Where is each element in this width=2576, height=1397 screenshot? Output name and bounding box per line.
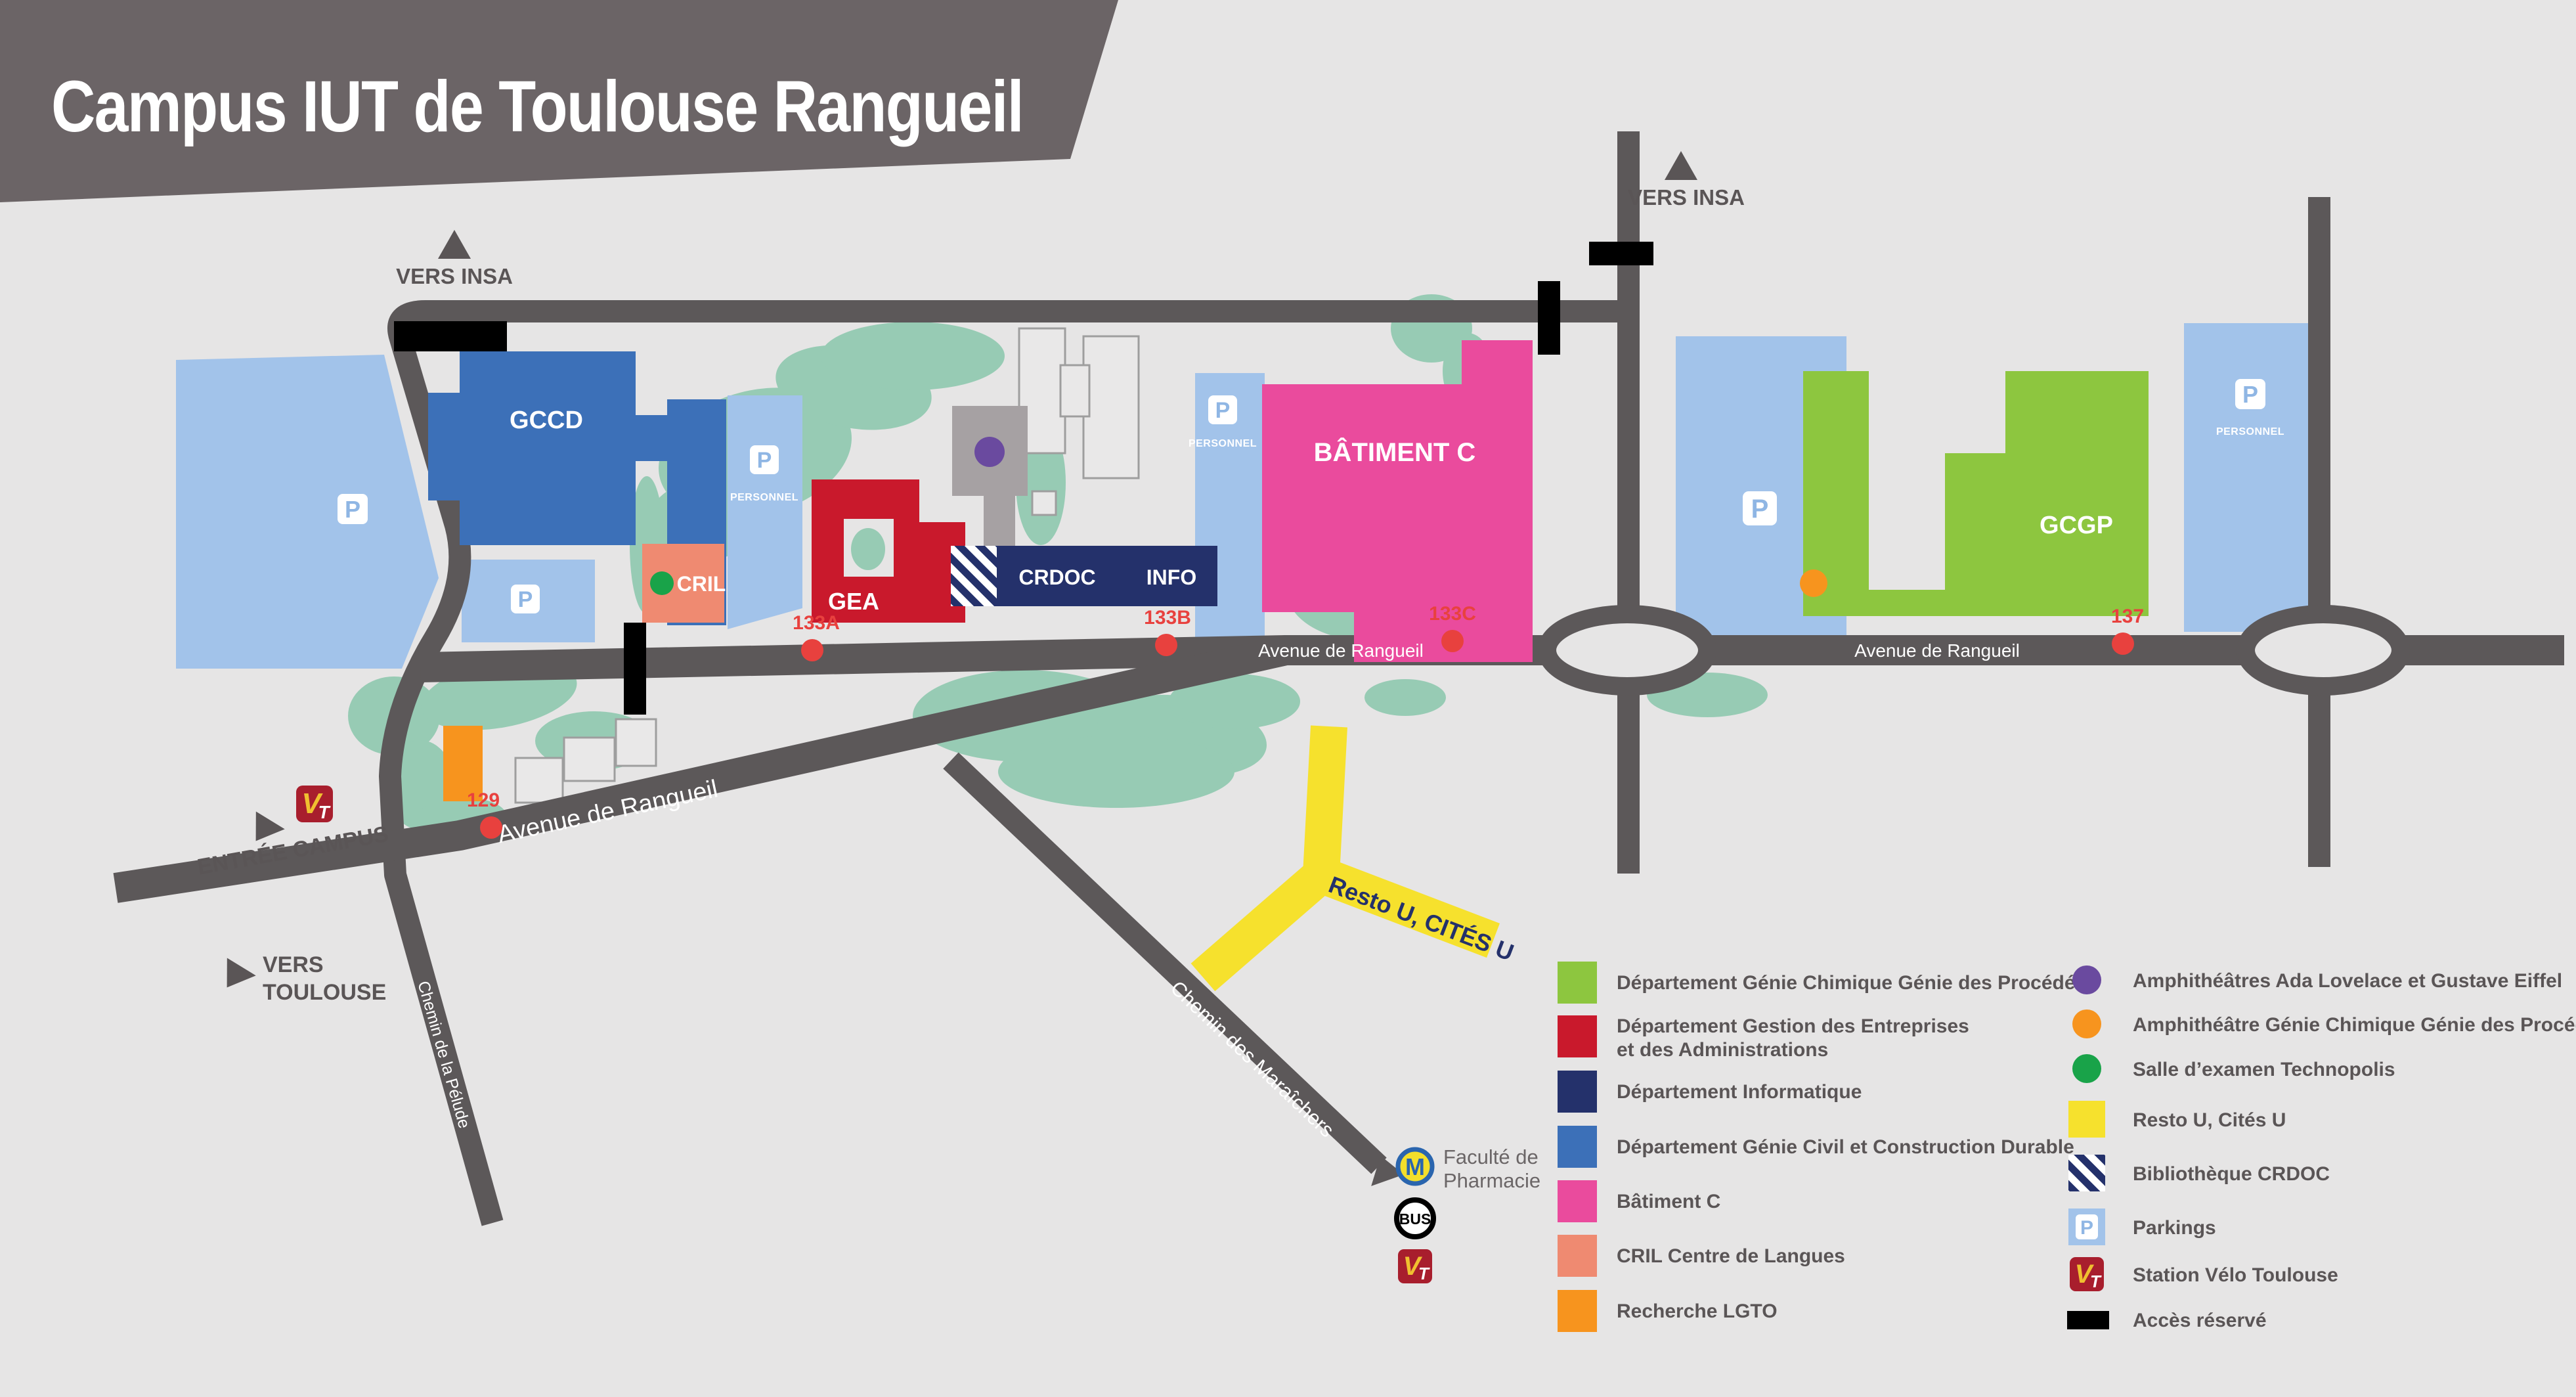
legend-label: Accès réservé: [2133, 1310, 2267, 1331]
legend-swatch-gcgp: [1558, 962, 1597, 1004]
green-area-blob: [1364, 679, 1446, 716]
campus-map-svg: Resto U, CITÉS U GCCD CRIL GEA CRDOC INF…: [0, 0, 2576, 1397]
legend-icon-bibliotheque: [2068, 1155, 2105, 1191]
stop-dot: [2112, 632, 2134, 655]
green-area-blob: [821, 322, 1005, 390]
parking-letter: P: [2242, 381, 2258, 408]
personnel-label: PERSONNEL: [730, 492, 798, 503]
velo-t-letter: T: [1418, 1264, 1430, 1283]
acces-reserve-bar: [624, 623, 646, 715]
stop-dot: [801, 639, 823, 661]
legend-label: Salle d’examen Technopolis: [2133, 1059, 2395, 1080]
legend-label: Amphithéâtre Génie Chimique Génie des Pr…: [2133, 1014, 2576, 1036]
parking-letter: P: [1751, 495, 1769, 523]
stop-dot: [480, 816, 502, 839]
gccd-label: GCCD: [510, 407, 583, 434]
stop-label: 133A: [793, 612, 840, 634]
velo-t-letter: T: [318, 802, 331, 822]
legend-label: Bibliothèque CRDOC: [2133, 1163, 2330, 1185]
batiment-c-label: BÂTIMENT C: [1314, 437, 1476, 467]
roundabout-east: [2246, 614, 2401, 686]
gcgp-label: GCGP: [2040, 512, 2113, 539]
legend-swatch-lgto: [1558, 1290, 1597, 1332]
legend-label: CRIL Centre de Langues: [1617, 1245, 1845, 1267]
outlined-building: [564, 738, 615, 781]
stop-label: 133B: [1144, 607, 1191, 629]
stop-dot: [1155, 634, 1177, 656]
amphi-building-stem: [984, 496, 1015, 547]
parking-icon: P: [338, 494, 368, 524]
legend-label: Parkings: [2133, 1217, 2216, 1239]
legend-icon-acces-reserve: [2067, 1311, 2109, 1329]
legend-icon-resto-u: [2068, 1101, 2105, 1138]
vers-toulouse-label-line1: VERS: [263, 952, 324, 977]
parking-letter: P: [757, 448, 772, 473]
stop-label: 129: [467, 789, 500, 811]
legend-swatch-gea: [1558, 1015, 1597, 1057]
page-title: Campus IUT de Toulouse Rangueil: [51, 66, 1023, 147]
legend-label: Département Génie Civil et Construction …: [1617, 1136, 2074, 1158]
stop-label: 137: [2111, 606, 2144, 627]
amphi-gcgp-dot: [1800, 569, 1827, 597]
legend-icon-technopolis: [2072, 1054, 2101, 1083]
legend-swatch-batimentc: [1558, 1180, 1597, 1222]
stop-dot: [1441, 630, 1464, 652]
campus-map-page: Resto U, CITÉS U GCCD CRIL GEA CRDOC INF…: [0, 0, 2576, 1397]
gea-courtyard-green: [851, 528, 885, 570]
vers-insa-west-label: VERS INSA: [396, 264, 513, 288]
velo-toulouse-icon: V T: [1398, 1249, 1432, 1283]
crdoc-striped-block: [951, 546, 997, 606]
legend-swatch-cril: [1558, 1235, 1597, 1277]
outlined-building: [1032, 491, 1056, 515]
velo-t-letter: T: [2090, 1272, 2102, 1291]
bus-icon: BUS: [1397, 1200, 1433, 1237]
legend-label: Recherche LGTO: [1617, 1300, 1778, 1322]
parking-personnel-gccd: [728, 395, 802, 629]
parking-letter: P: [2080, 1217, 2093, 1239]
roundabout-west: [1547, 614, 1707, 686]
green-area-blob: [998, 736, 1234, 808]
faculte-label-line2: Pharmacie: [1443, 1169, 1540, 1192]
gcgp-connector: [1869, 590, 1945, 616]
legend-icon-parkings: P: [2068, 1209, 2105, 1245]
faculte-label-line1: Faculté de: [1443, 1145, 1539, 1168]
legend-swatch-gccd: [1558, 1126, 1597, 1168]
avenue-rangueil-label-east: Avenue de Rangueil: [1854, 640, 2020, 661]
amphi-lovelace-eiffel-dot: [974, 437, 1005, 467]
legend-icon-velo: V T: [2070, 1257, 2104, 1291]
personnel-label: PERSONNEL: [2216, 426, 2284, 437]
info-label: INFO: [1146, 565, 1196, 589]
legend-label: Département Gestion des Entreprises: [1617, 1015, 1969, 1037]
metro-icon: M: [1398, 1149, 1432, 1184]
legend-label: Département Génie Chimique Génie des Pro…: [1617, 972, 2086, 994]
legend-swatch-info: [1558, 1071, 1597, 1113]
legend-icon-amphi-purple: [2072, 965, 2101, 994]
legend-label: Amphithéâtres Ada Lovelace et Gustave Ei…: [2133, 970, 2562, 992]
acces-reserve-bar: [394, 321, 507, 351]
gccd-west-wing: [428, 393, 460, 500]
parking-letter: P: [345, 496, 360, 523]
technopolis-dot: [650, 571, 674, 595]
vers-insa-east-label: VERS INSA: [1628, 185, 1745, 210]
legend-label: Station Vélo Toulouse: [2133, 1264, 2338, 1286]
legend-label: Resto U, Cités U: [2133, 1109, 2286, 1131]
cril-label: CRIL: [677, 572, 726, 596]
parking-icon: P: [511, 585, 540, 613]
bus-label: BUS: [1399, 1210, 1431, 1228]
acces-reserve-bar: [1589, 242, 1653, 265]
parking-personnel-est: [2184, 323, 2317, 632]
outlined-building: [1060, 365, 1089, 416]
avenue-rangueil-label-center: Avenue de Rangueil: [1258, 640, 1424, 661]
personnel-label: PERSONNEL: [1189, 438, 1257, 449]
outlined-building: [616, 719, 656, 766]
velo-toulouse-station-icon: V T: [296, 786, 333, 822]
gccd-building: [460, 351, 636, 545]
gccd-bridge: [636, 415, 667, 461]
parking-icon: P: [1743, 491, 1777, 525]
parking-letter: P: [1215, 398, 1231, 423]
outlined-building: [1083, 336, 1139, 478]
metro-letter: M: [1405, 1153, 1425, 1180]
legend-icon-amphi-orange: [2072, 1009, 2101, 1038]
legend-label-line2: et des Administrations: [1617, 1039, 1828, 1061]
acces-reserve-bar: [1538, 281, 1560, 355]
crdoc-label: CRDOC: [1018, 565, 1095, 589]
outlined-building: [515, 758, 563, 803]
vers-toulouse-label-line2: TOULOUSE: [263, 980, 386, 1005]
stop-label: 133C: [1429, 603, 1476, 625]
gea-label: GEA: [828, 588, 879, 615]
parking-letter: P: [518, 587, 533, 612]
legend-label: Bâtiment C: [1617, 1191, 1720, 1212]
legend-label: Département Informatique: [1617, 1081, 1862, 1103]
